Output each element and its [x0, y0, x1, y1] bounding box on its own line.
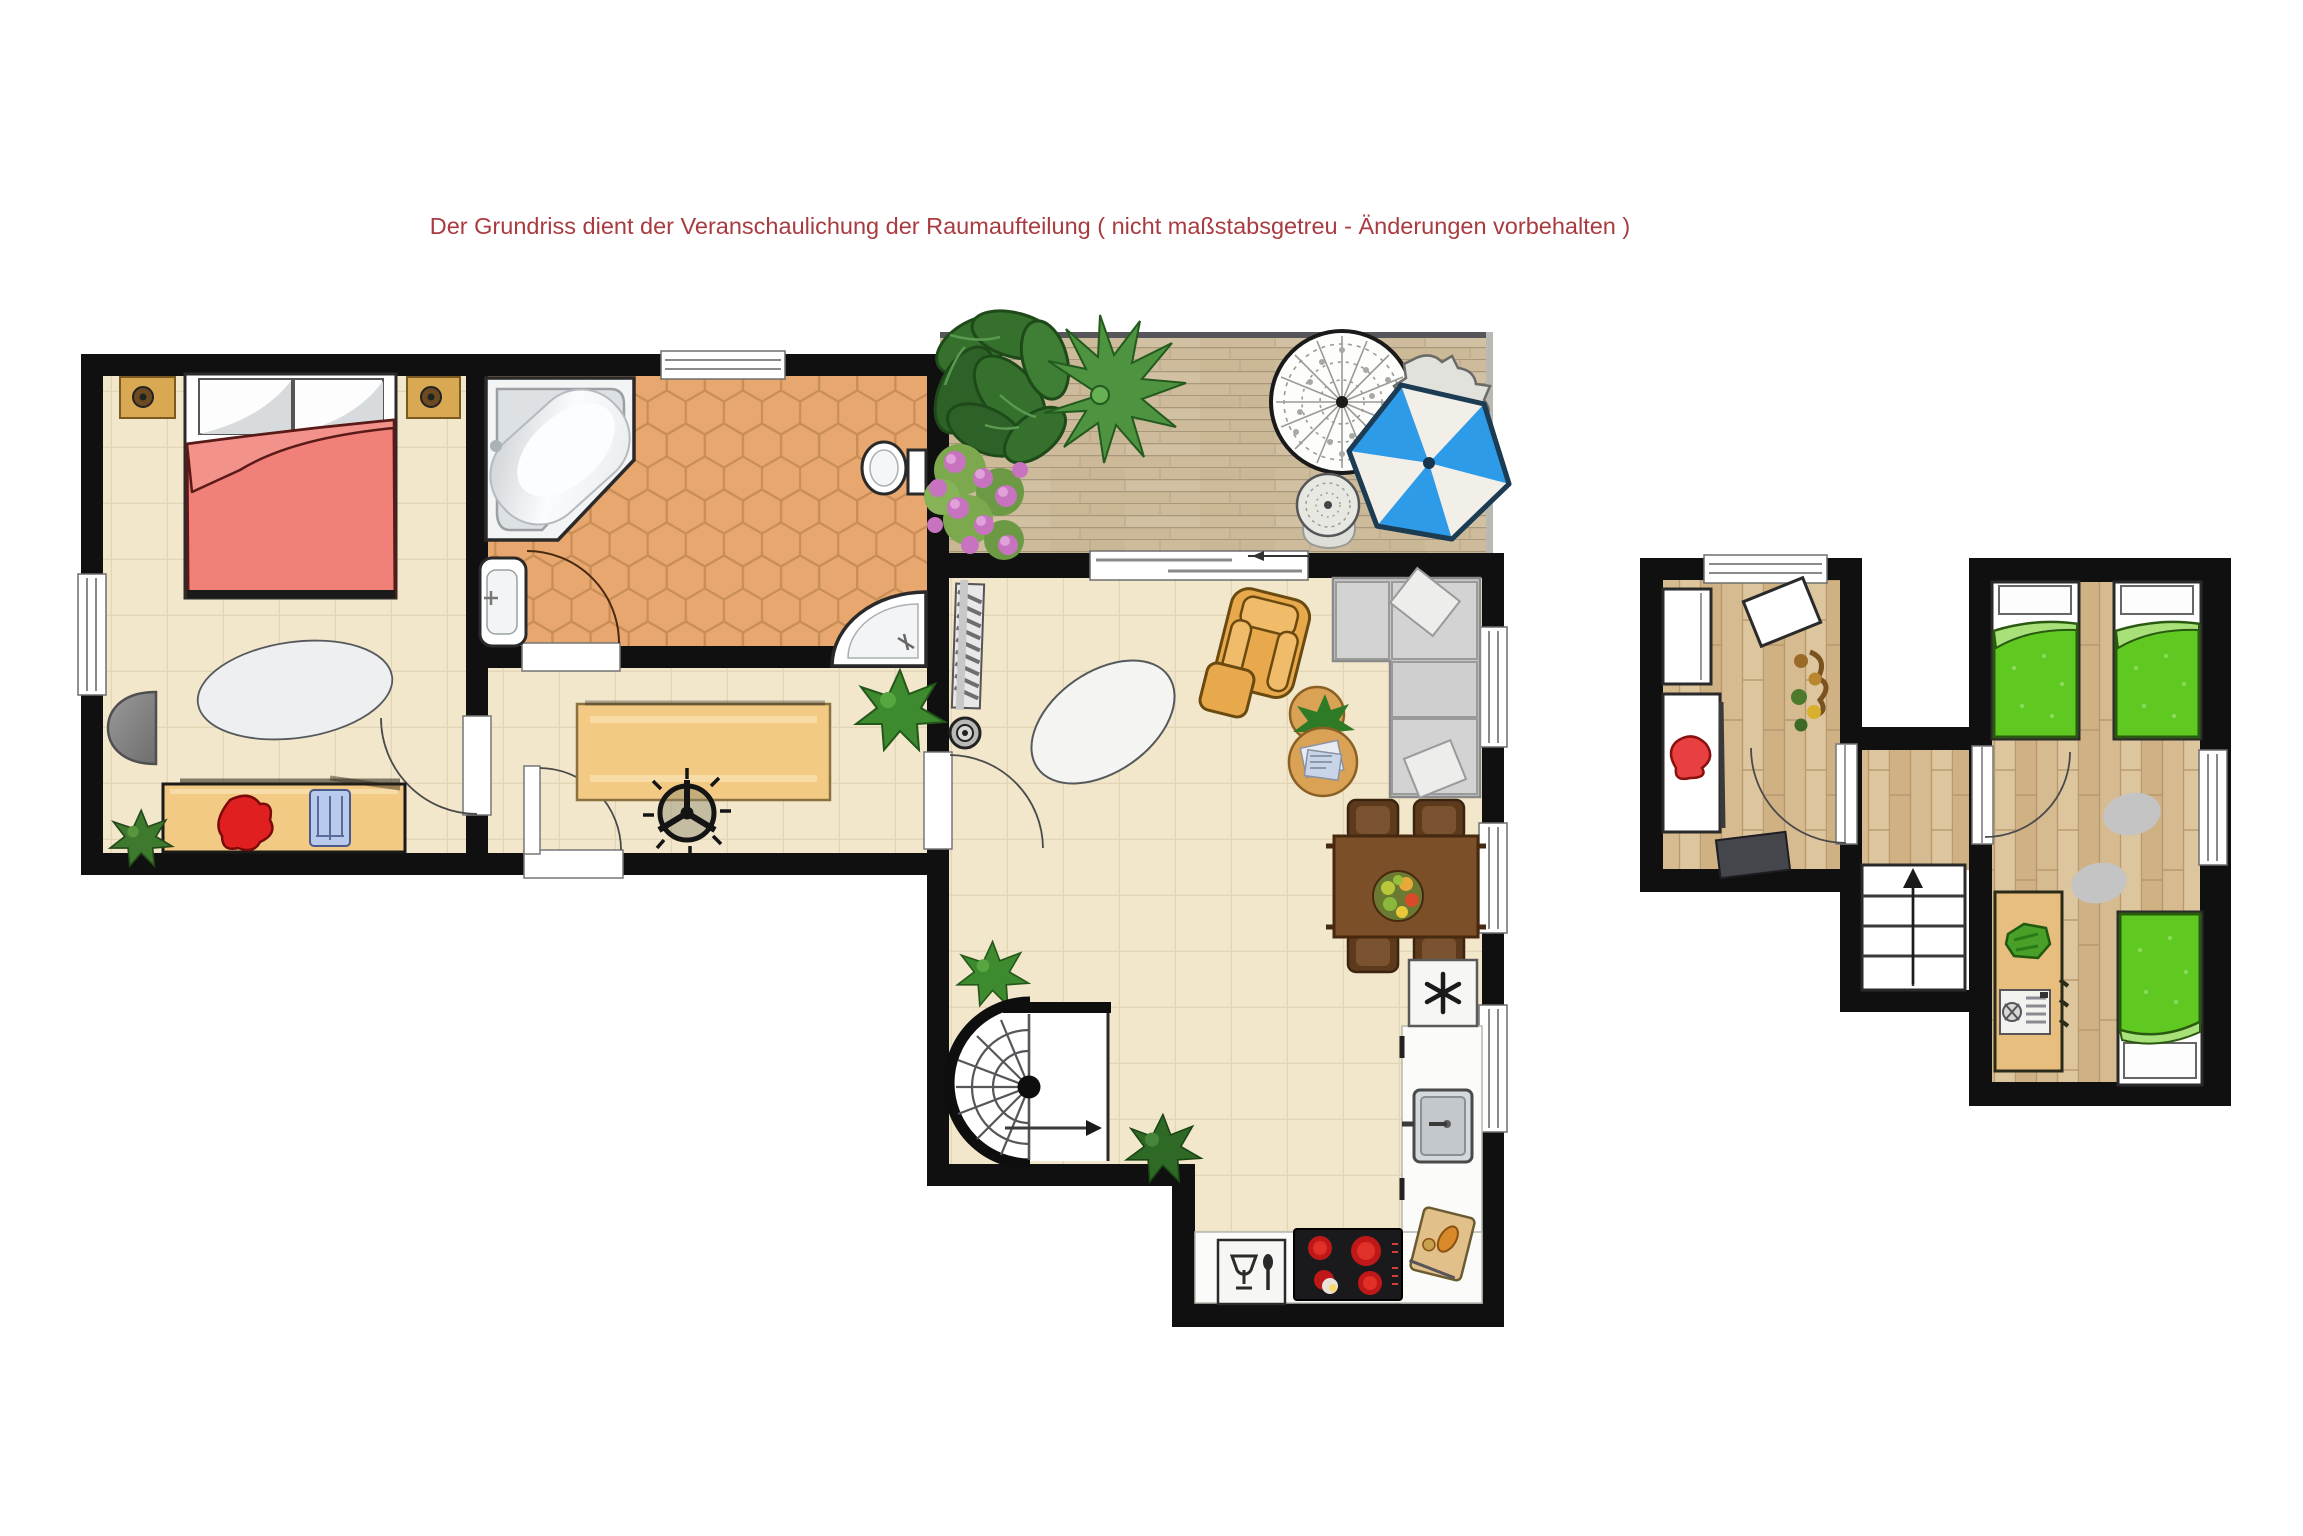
svg-text:Der Grundriss dient der Verans: Der Grundriss dient der Veranschaulichun…	[430, 213, 1630, 239]
